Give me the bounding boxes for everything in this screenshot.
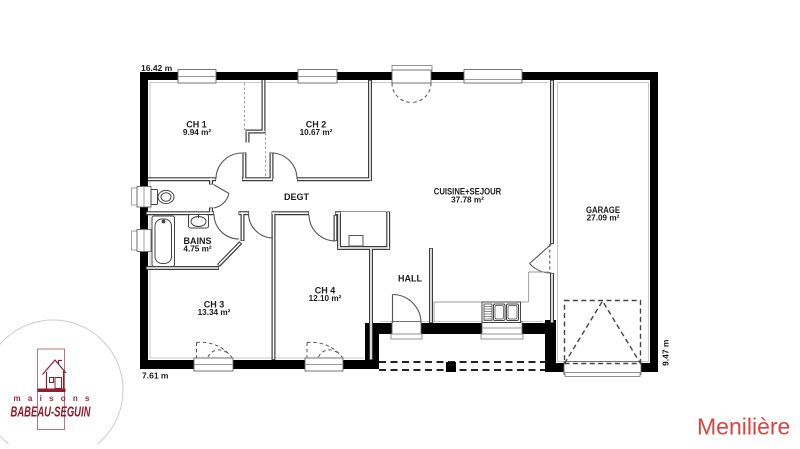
svg-text:Menilière: Menilière — [697, 414, 790, 440]
svg-text:DEGT: DEGT — [284, 192, 310, 202]
svg-text:27.09 m²: 27.09 m² — [587, 214, 620, 223]
svg-text:16.42 m: 16.42 m — [141, 63, 173, 73]
svg-text:4.75 m²: 4.75 m² — [183, 245, 211, 254]
svg-text:9.94 m²: 9.94 m² — [183, 128, 211, 137]
svg-text:12.10 m²: 12.10 m² — [309, 294, 342, 303]
svg-text:9.47 m: 9.47 m — [661, 339, 671, 366]
svg-text:10.67 m²: 10.67 m² — [300, 128, 333, 137]
svg-text:BABEAU-SEGUIN: BABEAU-SEGUIN — [11, 404, 91, 420]
svg-text:13.34 m²: 13.34 m² — [198, 308, 231, 317]
svg-text:HALL: HALL — [398, 274, 422, 284]
svg-text:7.61 m: 7.61 m — [142, 371, 169, 381]
svg-text:37.78 m²: 37.78 m² — [451, 195, 484, 204]
